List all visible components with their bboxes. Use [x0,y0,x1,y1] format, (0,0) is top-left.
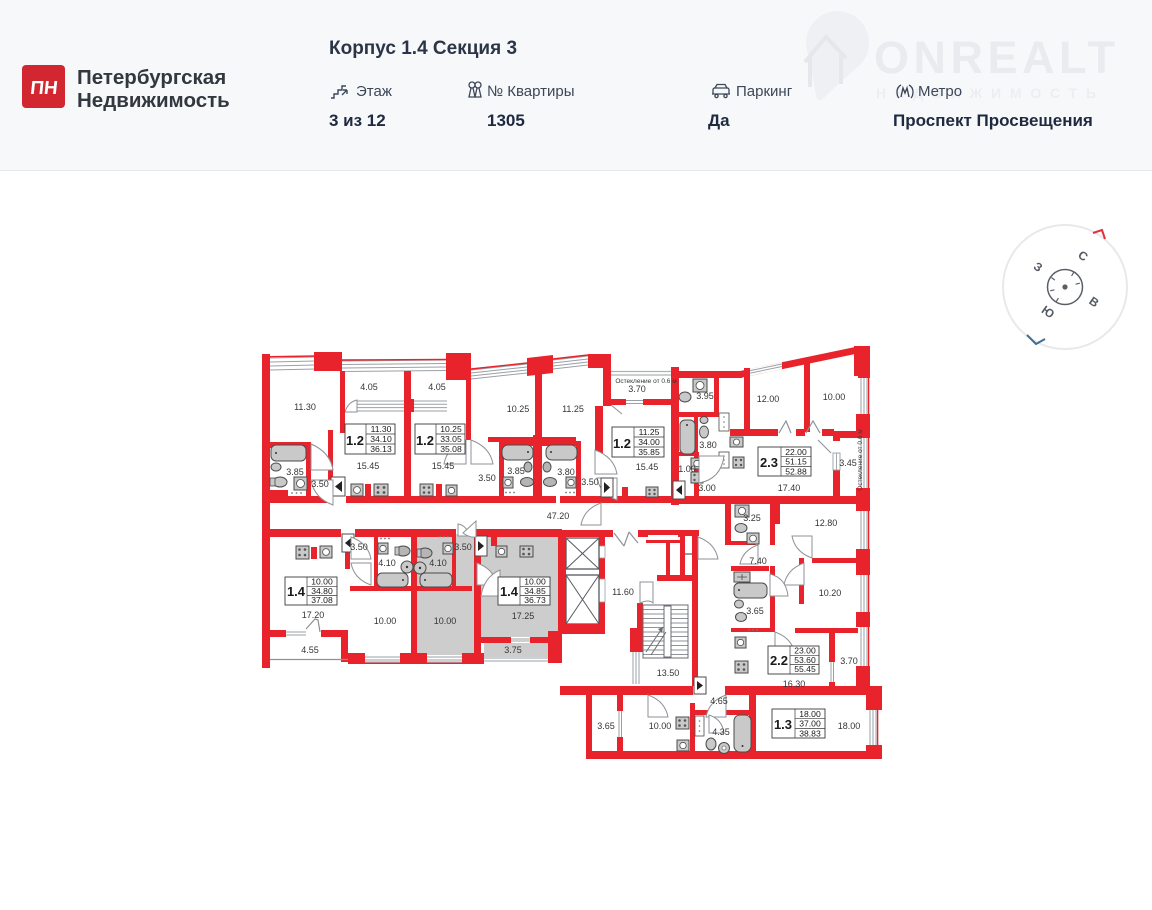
svg-text:51.15: 51.15 [785,457,807,467]
svg-text:17.20: 17.20 [302,610,325,620]
svg-text:35.08: 35.08 [440,444,462,454]
svg-text:3.50: 3.50 [350,542,368,552]
svg-text:4.65: 4.65 [710,696,728,706]
svg-text:12.80: 12.80 [815,518,838,528]
svg-text:37.00: 37.00 [799,719,821,729]
svg-text:3.50: 3.50 [311,479,329,489]
svg-text:1.4: 1.4 [500,584,519,599]
svg-text:17.40: 17.40 [778,483,801,493]
svg-text:11.30: 11.30 [294,402,316,412]
svg-text:18.00: 18.00 [838,721,861,731]
svg-text:3.75: 3.75 [504,645,522,655]
svg-text:22.00: 22.00 [785,447,807,457]
svg-text:3.95: 3.95 [696,391,714,401]
svg-text:10.00: 10.00 [434,616,457,626]
svg-text:10.00: 10.00 [649,721,672,731]
svg-text:3.85: 3.85 [286,467,304,477]
svg-text:11.25: 11.25 [639,427,660,437]
svg-text:13.50: 13.50 [657,668,680,678]
svg-text:1.2: 1.2 [613,436,631,451]
svg-text:33.05: 33.05 [440,434,462,444]
svg-text:Остекление от 0.6 м: Остекление от 0.6 м [857,429,864,491]
svg-text:3.70: 3.70 [840,656,858,666]
svg-text:10.25: 10.25 [507,404,530,414]
svg-text:34.00: 34.00 [638,437,660,447]
svg-text:11.60: 11.60 [612,587,634,597]
svg-text:10.25: 10.25 [440,424,462,434]
svg-text:3.45: 3.45 [839,458,857,468]
svg-text:1.4: 1.4 [287,584,306,599]
svg-text:17.25: 17.25 [512,611,535,621]
svg-text:34.10: 34.10 [370,434,392,444]
svg-text:15.45: 15.45 [636,462,659,472]
svg-text:16.30: 16.30 [783,679,806,689]
svg-text:55.45: 55.45 [794,664,816,674]
svg-text:1.00: 1.00 [678,464,696,474]
svg-text:47.20: 47.20 [547,511,570,521]
svg-text:1.2: 1.2 [416,433,434,448]
svg-text:2.2: 2.2 [770,653,788,668]
svg-text:3.50: 3.50 [478,473,496,483]
svg-text:38.83: 38.83 [799,728,821,738]
svg-text:52.88: 52.88 [785,466,807,476]
svg-text:10.20: 10.20 [819,588,842,598]
svg-text:15.45: 15.45 [357,461,380,471]
svg-text:1.2: 1.2 [346,433,364,448]
svg-text:3.65: 3.65 [597,721,615,731]
svg-text:11.30: 11.30 [371,424,392,434]
svg-text:7.40: 7.40 [749,556,767,566]
svg-text:4.10: 4.10 [378,558,396,568]
svg-text:3.50: 3.50 [454,542,472,552]
svg-text:2.3: 2.3 [760,455,778,470]
svg-text:10.00: 10.00 [374,616,397,626]
svg-text:3.85: 3.85 [507,466,525,476]
svg-text:4.05: 4.05 [428,382,446,392]
svg-text:3.70: 3.70 [628,384,646,394]
svg-text:15.45: 15.45 [432,461,455,471]
svg-text:3.65: 3.65 [746,606,764,616]
svg-text:18.00: 18.00 [799,709,821,719]
svg-text:36.73: 36.73 [524,595,546,605]
svg-text:3.25: 3.25 [743,513,761,523]
svg-text:4.55: 4.55 [301,645,319,655]
svg-text:35.85: 35.85 [638,447,660,457]
svg-text:1.3: 1.3 [774,717,792,732]
svg-text:3.00: 3.00 [698,483,716,493]
svg-text:37.08: 37.08 [311,595,333,605]
svg-text:Остекление от 0.6 м: Остекление от 0.6 м [615,378,677,385]
svg-text:4.35: 4.35 [712,727,730,737]
svg-text:3.80: 3.80 [699,440,717,450]
svg-text:3.50: 3.50 [581,477,599,487]
svg-text:4.10: 4.10 [429,558,447,568]
svg-text:10.00: 10.00 [823,392,846,402]
svg-text:11.25: 11.25 [562,404,584,414]
svg-text:12.00: 12.00 [757,394,780,404]
svg-text:4.05: 4.05 [360,382,378,392]
svg-text:3.80: 3.80 [557,467,575,477]
svg-text:36.13: 36.13 [370,444,392,454]
